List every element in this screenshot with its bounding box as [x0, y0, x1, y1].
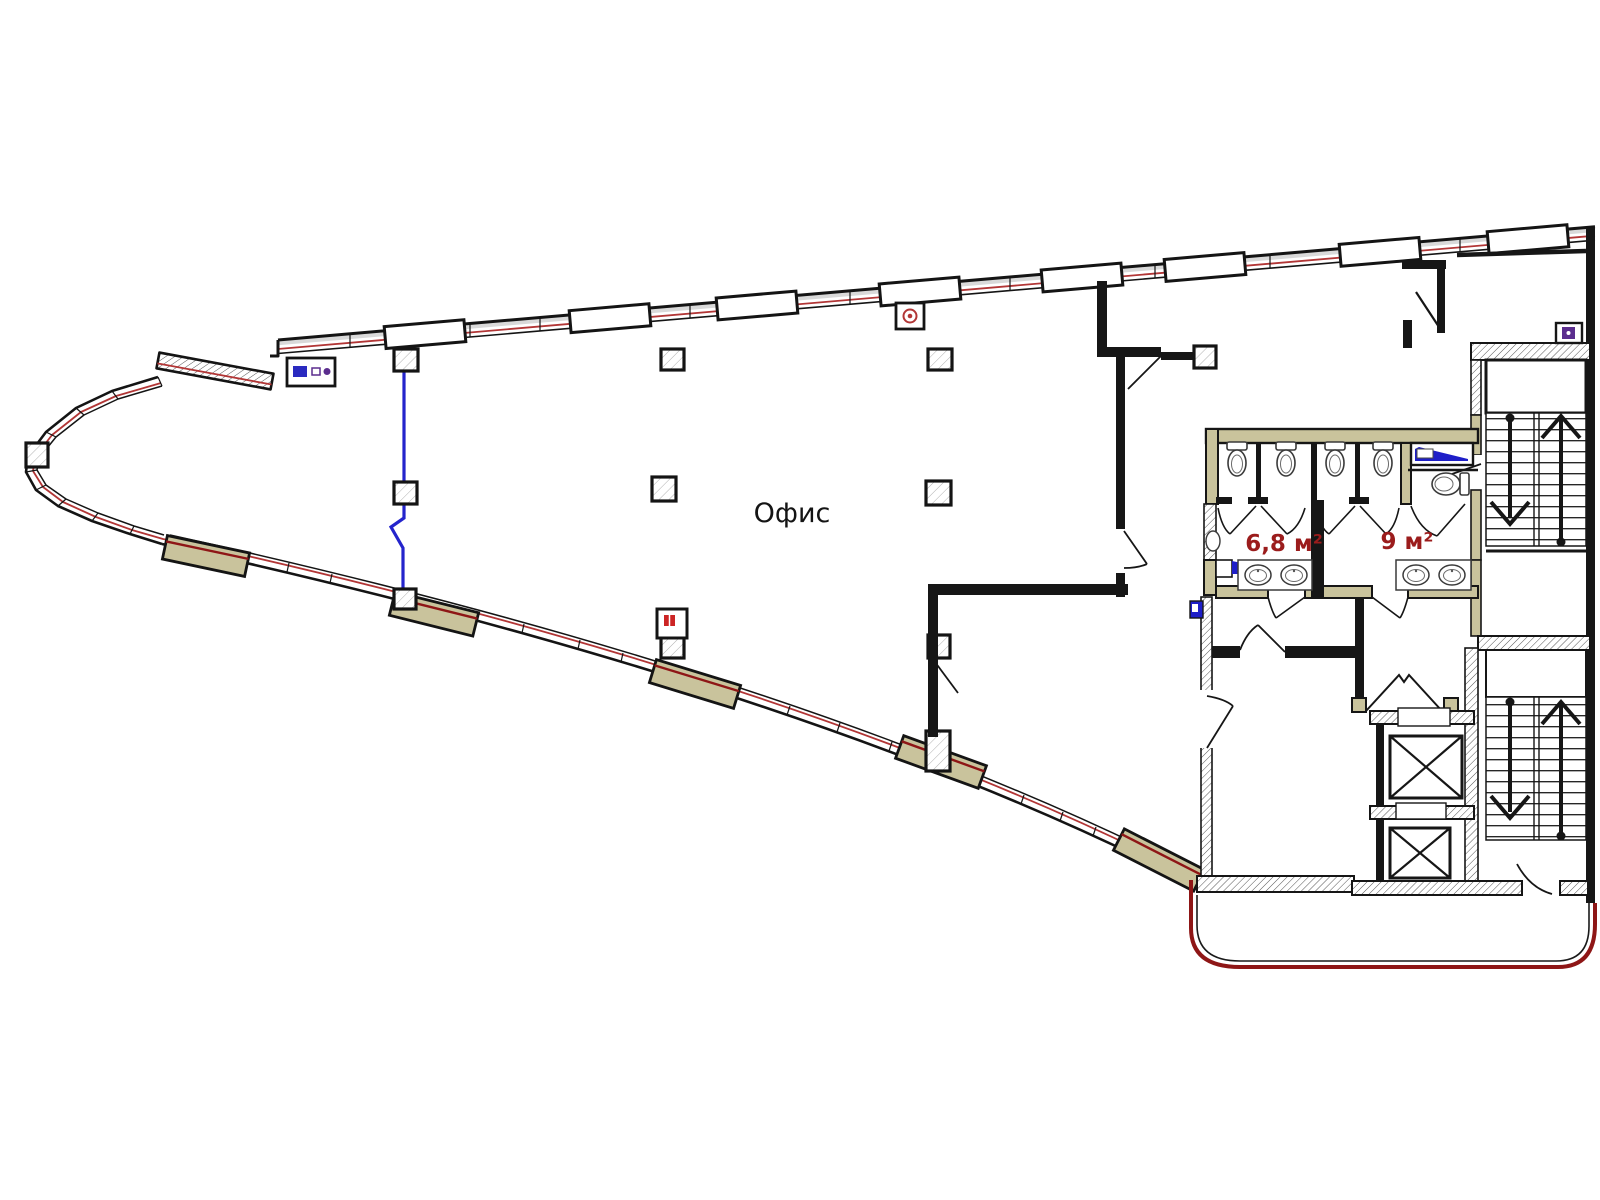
bathroom-block: 6,8 м² 9 м² — [1190, 429, 1478, 618]
door-swing-icon — [1416, 292, 1439, 327]
fire-hydrant-icon — [657, 609, 687, 638]
lobby-double-door-icon — [1366, 675, 1442, 711]
sink-icon — [1281, 565, 1307, 585]
elevator-icon — [1390, 828, 1450, 878]
door-swing-icon — [1372, 597, 1408, 618]
trough-urinal-icon — [1408, 443, 1478, 470]
wall-pier — [569, 304, 651, 333]
sill-wall-segment — [157, 353, 274, 390]
toilet-icon — [1373, 442, 1393, 476]
toilet-icon — [1276, 442, 1296, 476]
sink-counter — [1396, 560, 1471, 590]
column-icon — [1194, 346, 1216, 368]
door-swing-icon — [1128, 356, 1161, 389]
toilet-icon — [1227, 442, 1247, 476]
column-icon — [26, 443, 48, 467]
column-icon — [928, 349, 952, 370]
signal-box-icon — [1556, 323, 1582, 343]
vestibule-walls — [1402, 260, 1446, 348]
sink-icon — [1245, 565, 1271, 585]
utility-box-icon — [896, 303, 924, 329]
room-68-area-label: 6,8 м² — [1245, 531, 1323, 557]
column-icon — [926, 481, 951, 505]
floor-plan-canvas: Офис — [0, 0, 1600, 1200]
wall-pier — [1041, 263, 1123, 292]
door-swing-icon — [1268, 597, 1305, 618]
office-room-label: Офис — [754, 498, 831, 529]
toilet-icon — [1325, 442, 1345, 476]
column-icon — [661, 349, 684, 370]
floor-plan-drawing: Офис — [0, 0, 1600, 1200]
stairwell-lower — [1486, 650, 1586, 841]
wall-pier — [879, 277, 961, 306]
door-swing-icon — [1261, 506, 1305, 534]
corner-fixture — [1190, 601, 1203, 618]
sink-icon — [1206, 531, 1220, 551]
column-icon — [394, 589, 416, 609]
elevator-icon — [1390, 736, 1462, 798]
top-curtain-wall — [278, 225, 1595, 354]
room-9-area-label: 9 м² — [1381, 529, 1434, 555]
stairwell-upper — [1486, 360, 1586, 551]
sink-icon — [1439, 565, 1465, 585]
door-swing-icon — [1218, 506, 1256, 534]
right-exterior-wall — [1586, 228, 1595, 903]
wall-pier — [384, 320, 466, 349]
column-icon — [394, 482, 417, 504]
wall-pier — [1487, 225, 1569, 254]
column-icon — [394, 349, 418, 371]
riser-pipe-blue — [391, 371, 404, 589]
elevator-lobby — [1352, 675, 1474, 878]
toilet-icon — [1432, 473, 1469, 495]
sink-counter — [1238, 560, 1312, 590]
electrical-panel-icon — [287, 358, 335, 386]
wall-pier — [716, 291, 798, 320]
door-swing-icon — [1124, 531, 1147, 568]
left-tip-curtain-wall — [26, 340, 278, 544]
office-corridor-wall — [1116, 352, 1125, 529]
wall-pier — [1164, 253, 1246, 282]
column-icon — [652, 477, 676, 501]
door-swing-icon — [935, 662, 958, 693]
sink-icon — [1403, 565, 1429, 585]
